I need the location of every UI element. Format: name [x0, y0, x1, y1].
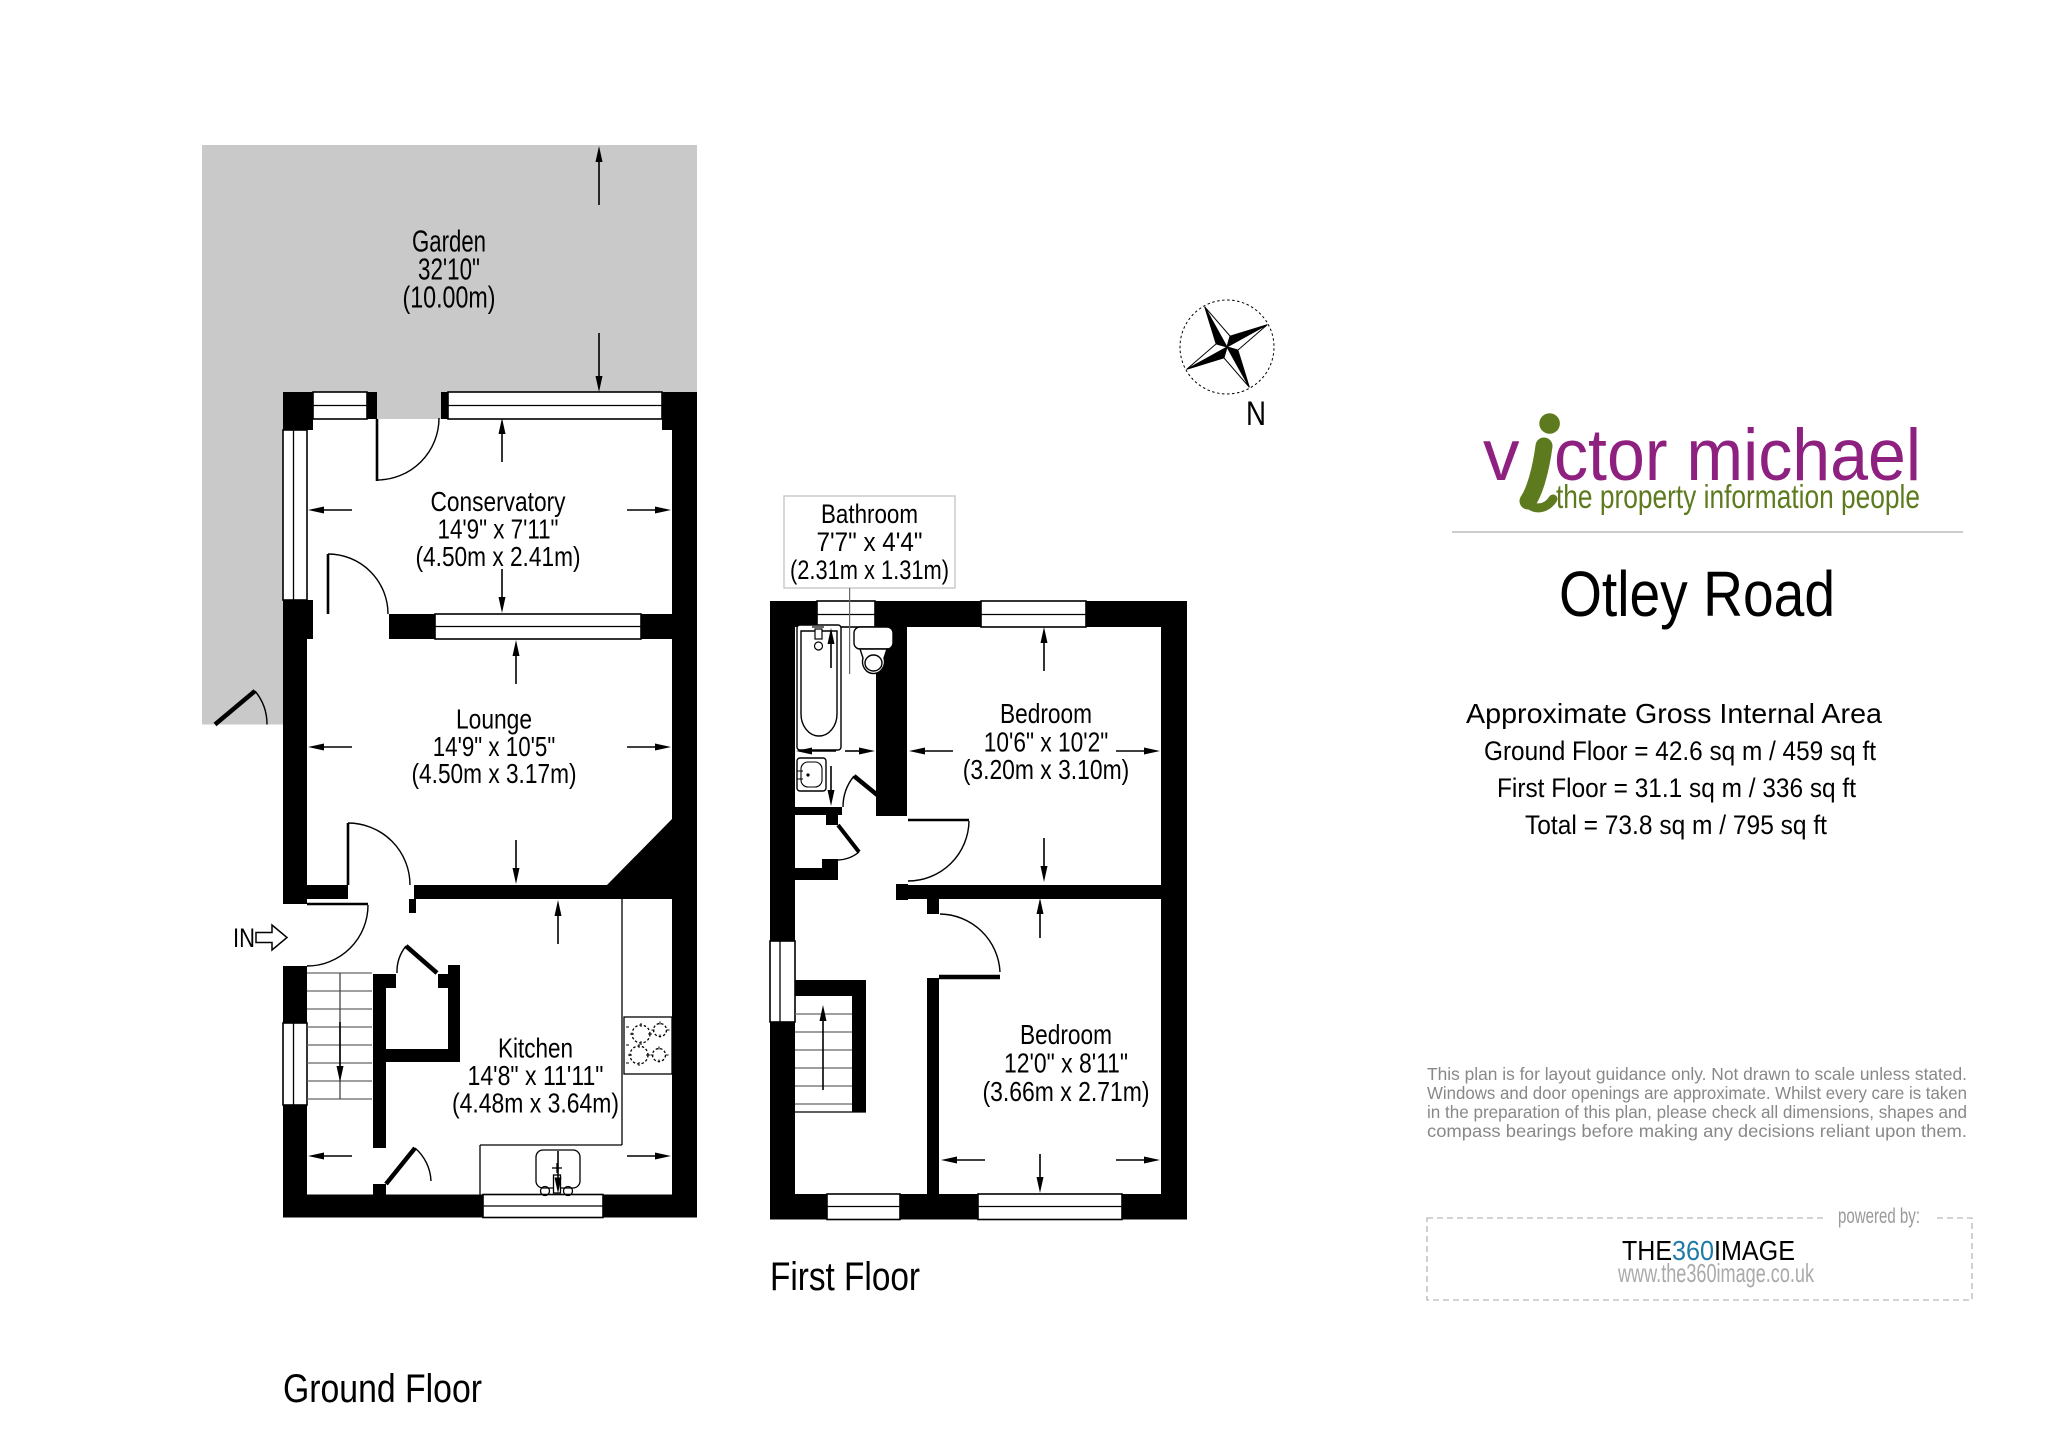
- svg-text:(4.50m x 2.41m): (4.50m x 2.41m): [416, 541, 581, 572]
- svg-text:in the preparation of this pla: in the preparation of this plan, please …: [1427, 1102, 1967, 1122]
- svg-text:powered by:: powered by:: [1838, 1205, 1920, 1228]
- svg-text:compass bearings before making: compass bearings before making any decis…: [1427, 1121, 1967, 1141]
- svg-text:Ground Floor: Ground Floor: [283, 1367, 482, 1411]
- svg-text:Windows and door openings are: Windows and door openings are approximat…: [1427, 1083, 1967, 1103]
- svg-text:www.the360image.co.uk: www.the360image.co.uk: [1617, 1258, 1814, 1288]
- svg-text:This plan is for layout guidan: This plan is for layout guidance only. N…: [1427, 1064, 1967, 1084]
- svg-text:Lounge: Lounge: [456, 704, 532, 735]
- svg-text:14'8" x 11'11": 14'8" x 11'11": [468, 1060, 604, 1091]
- svg-text:Ground Floor = 42.6 sq m / 459: Ground Floor = 42.6 sq m / 459 sq ft: [1484, 736, 1876, 766]
- svg-text:First Floor: First Floor: [770, 1255, 920, 1299]
- svg-text:Total = 73.8 sq m / 795 sq ft: Total = 73.8 sq m / 795 sq ft: [1525, 810, 1827, 840]
- svg-text:Approximate Gross Internal Are: Approximate Gross Internal Area: [1466, 698, 1882, 729]
- svg-text:10'6" x 10'2": 10'6" x 10'2": [984, 727, 1109, 758]
- svg-text:Bedroom: Bedroom: [1000, 698, 1092, 729]
- svg-text:(10.00m): (10.00m): [403, 280, 496, 315]
- svg-text:IN: IN: [233, 923, 255, 953]
- svg-text:(4.48m x 3.64m): (4.48m x 3.64m): [452, 1088, 619, 1119]
- svg-text:7'7" x 4'4": 7'7" x 4'4": [817, 527, 923, 557]
- svg-text:Bedroom: Bedroom: [1020, 1019, 1112, 1050]
- svg-text:(3.20m x 3.10m): (3.20m x 3.10m): [963, 754, 1130, 785]
- svg-text:(4.50m x 3.17m): (4.50m x 3.17m): [412, 758, 577, 789]
- svg-text:Conservatory: Conservatory: [431, 486, 566, 517]
- svg-text:14'9" x 7'11": 14'9" x 7'11": [438, 514, 559, 545]
- svg-text:Otley Road: Otley Road: [1559, 558, 1835, 630]
- svg-text:Kitchen: Kitchen: [498, 1033, 573, 1064]
- svg-text:12'0" x 8'11": 12'0" x 8'11": [1004, 1048, 1128, 1079]
- svg-text:First Floor = 31.1 sq m / 336: First Floor = 31.1 sq m / 336 sq ft: [1497, 773, 1856, 803]
- svg-text:(2.31m x 1.31m): (2.31m x 1.31m): [790, 555, 949, 585]
- svg-text:N: N: [1246, 395, 1266, 433]
- svg-text:v: v: [1483, 415, 1520, 496]
- svg-text:the property information peopl: the property information people: [1556, 478, 1920, 515]
- svg-text:Bathroom: Bathroom: [821, 499, 918, 529]
- svg-text:(3.66m x 2.71m): (3.66m x 2.71m): [983, 1076, 1150, 1107]
